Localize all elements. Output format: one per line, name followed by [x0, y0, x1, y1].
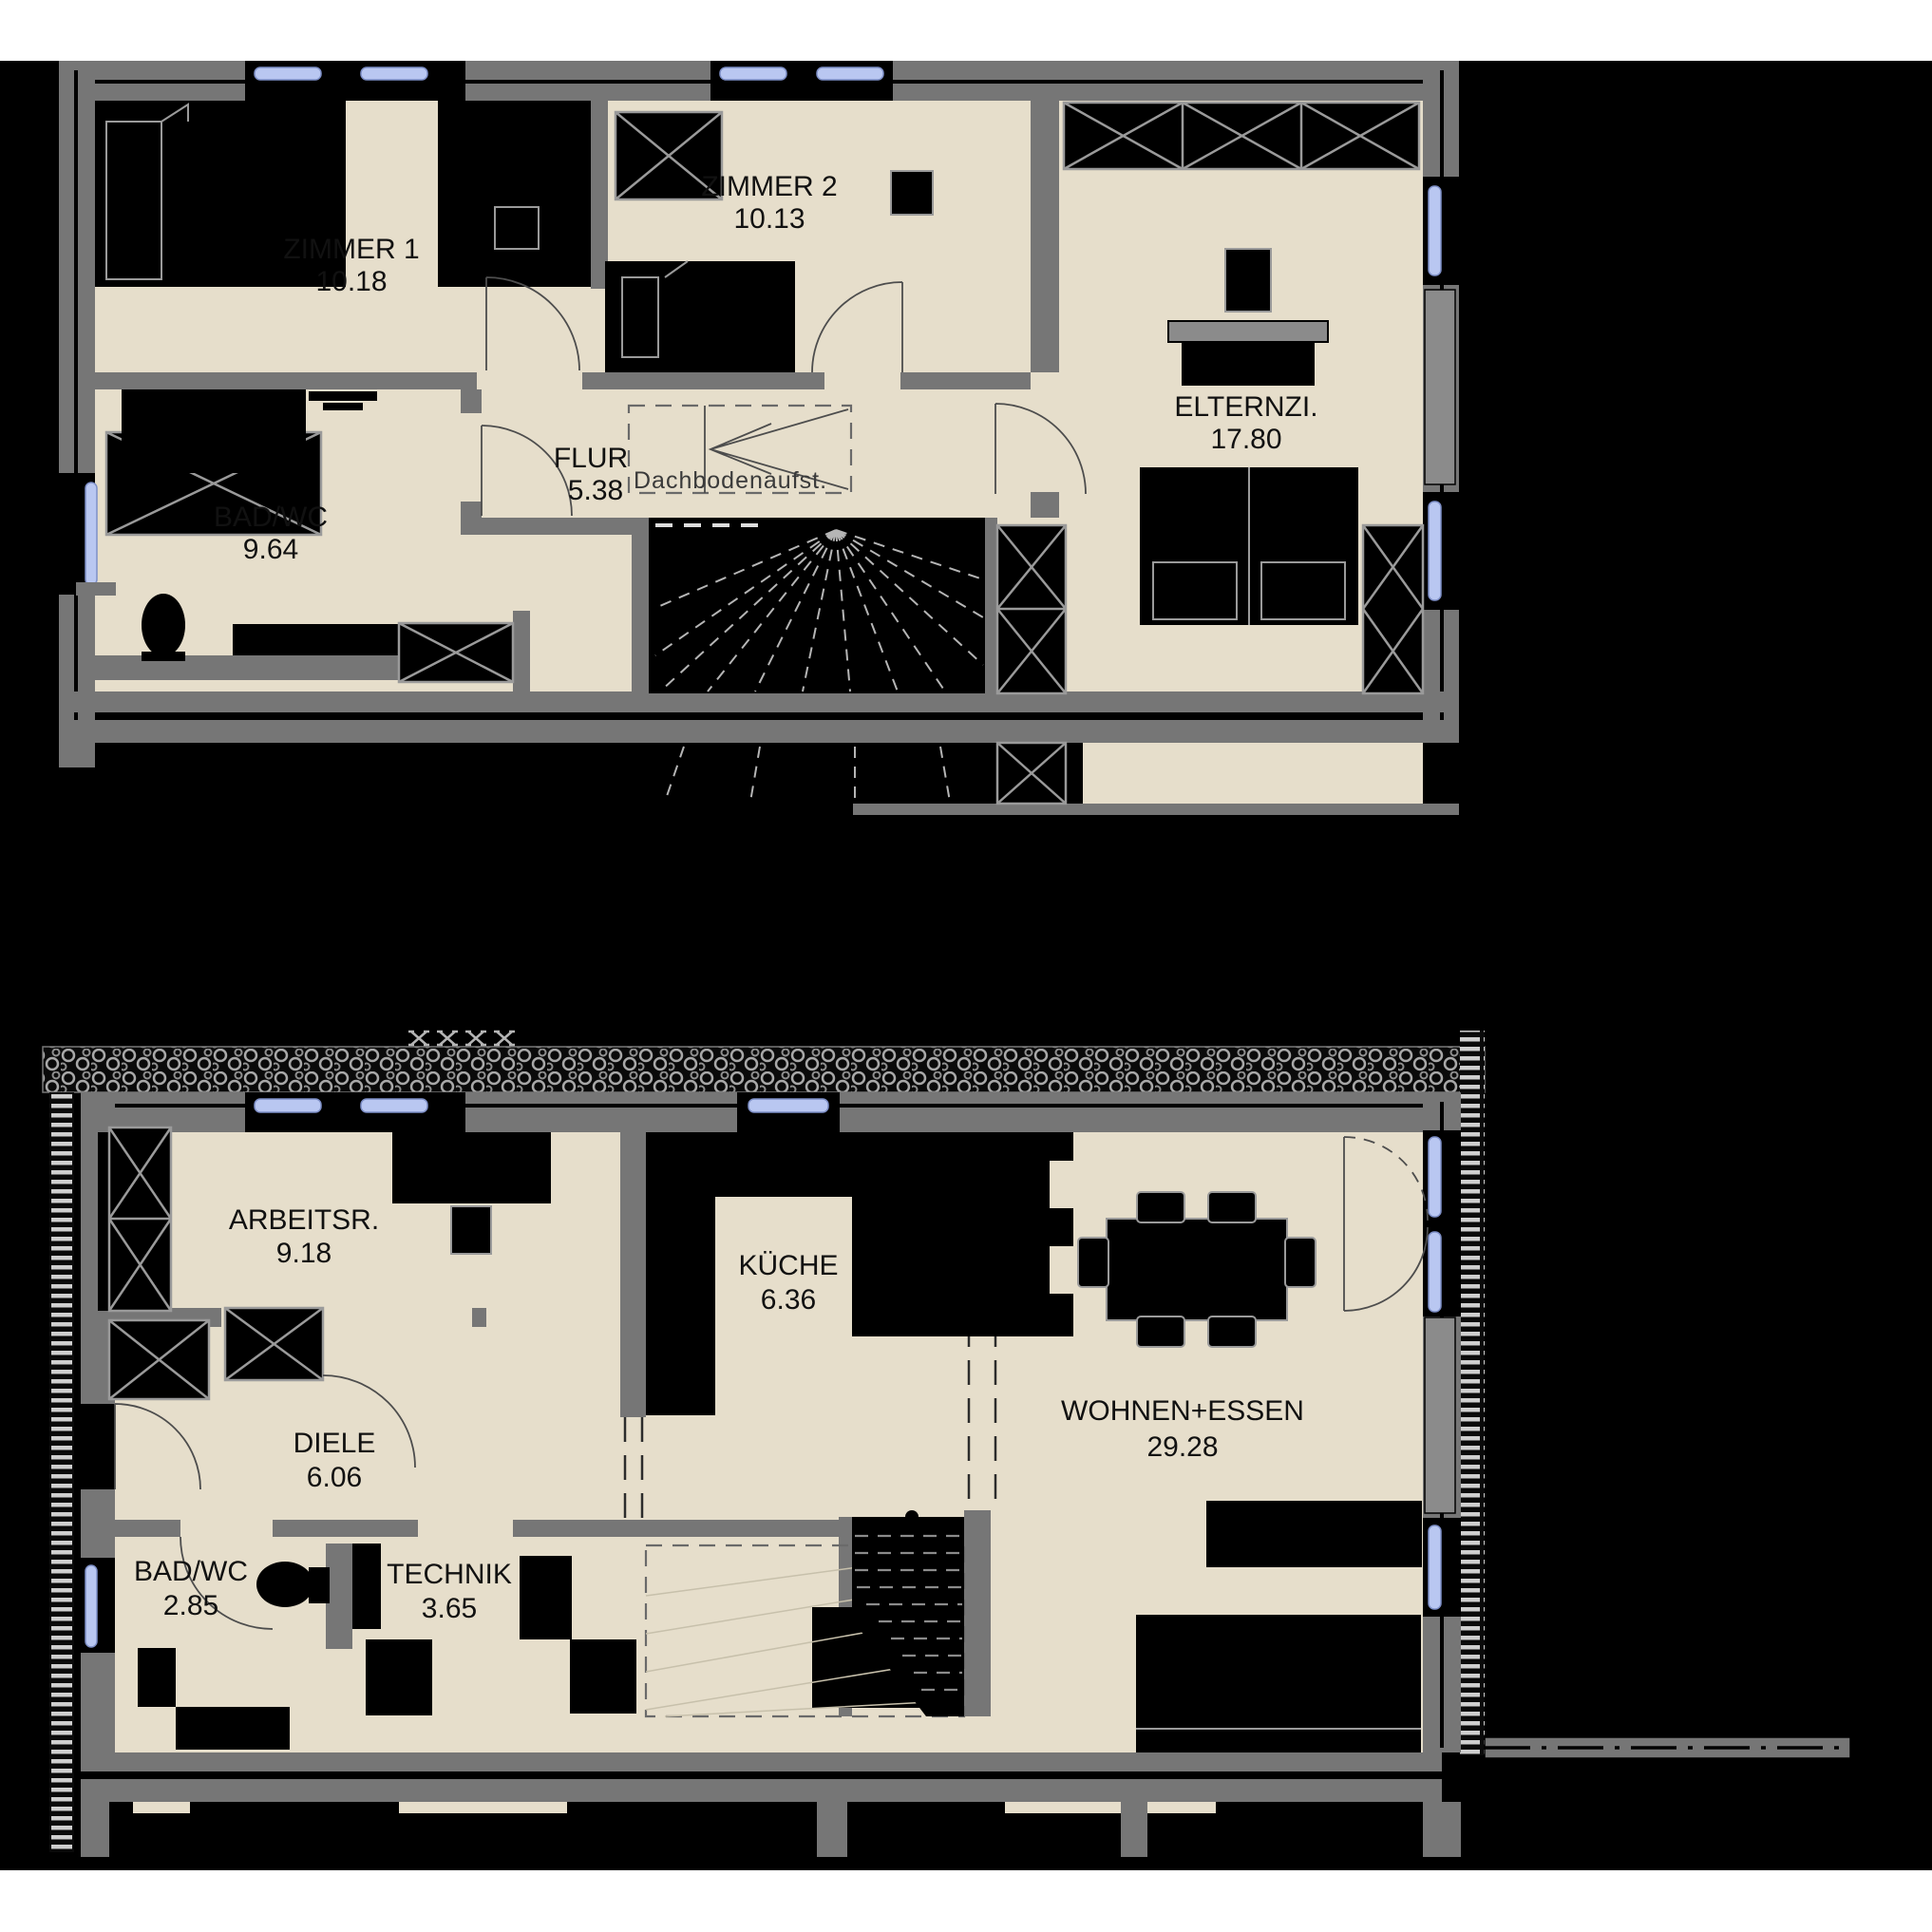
- dining-table: [1107, 1219, 1287, 1320]
- room-area: 10.13: [733, 203, 805, 235]
- closet-icon: [997, 525, 1066, 804]
- toilet-icon: [256, 1562, 313, 1607]
- pillow: [1153, 562, 1237, 619]
- washer: [352, 1544, 381, 1629]
- radiator: [309, 391, 377, 401]
- room-label: KÜCHE: [738, 1250, 838, 1281]
- room-label: TECHNIK: [387, 1559, 512, 1590]
- room-area: 10.18: [315, 266, 387, 297]
- pillow: [1261, 562, 1345, 619]
- balcony-door: [1425, 290, 1455, 484]
- window-icon: [361, 1099, 427, 1112]
- chair: [1078, 1238, 1108, 1287]
- toilet-icon: [142, 594, 185, 656]
- chest-icon: [225, 1308, 323, 1380]
- room-label: ZIMMER 1: [283, 234, 419, 265]
- lower-bottom-bands: [81, 1752, 1461, 1857]
- chair: [1208, 1192, 1256, 1222]
- room-label: FLUR: [554, 443, 628, 474]
- window-icon: [255, 67, 321, 80]
- upper-stairwell: [649, 518, 985, 804]
- window-icon: [85, 483, 97, 585]
- room-area: 5.38: [568, 475, 623, 506]
- desk-body: [1182, 342, 1315, 386]
- window-icon: [85, 1565, 97, 1647]
- terrace-door: [1425, 1317, 1455, 1513]
- property-fence: [1485, 1737, 1850, 1758]
- wardrobe-icon: [1363, 525, 1423, 693]
- gravel-strip: [43, 1047, 1485, 1092]
- window-icon: [817, 67, 883, 80]
- window-icon: [1429, 186, 1441, 275]
- room-label: DIELE: [294, 1428, 376, 1459]
- washstand: [122, 389, 306, 473]
- window-icon: [1429, 502, 1441, 600]
- chest-icon: [399, 623, 513, 682]
- wardrobe-icon: [1064, 103, 1419, 169]
- planting-marks: [408, 1032, 515, 1045]
- window-icon: [1429, 1137, 1441, 1217]
- left-terrace-hatch: [49, 1092, 74, 1852]
- wardrobe-icon: [109, 1320, 209, 1399]
- newel-post: [905, 1510, 919, 1524]
- room-area: 2.85: [163, 1590, 218, 1621]
- technik-unit: [366, 1639, 432, 1715]
- room-label: BAD/WC: [214, 502, 328, 533]
- desk-top: [1168, 321, 1328, 342]
- room-label: ZIMMER 2: [701, 171, 837, 202]
- technik-unit: [520, 1556, 572, 1639]
- room-area: 3.65: [422, 1593, 477, 1624]
- sideboard: [1206, 1501, 1422, 1567]
- room-area: 6.06: [307, 1462, 362, 1493]
- room-area: 29.28: [1146, 1431, 1218, 1463]
- nightstand: [495, 207, 539, 249]
- lower-floor-plan: ARBEITSR. 9.18 KÜCHE 6.36 WOHNEN+ESSEN 2…: [43, 1031, 1850, 1857]
- window-icon: [255, 1099, 321, 1112]
- window-icon: [748, 1099, 828, 1112]
- floor-plan-page: ZIMMER 1 10.18 ZIMMER 2 10.13 ELTERNZI. …: [0, 0, 1932, 1932]
- wardrobe-icon: [109, 1127, 171, 1311]
- room-label: WOHNEN+ESSEN: [1061, 1395, 1304, 1427]
- desk: [451, 1206, 491, 1254]
- right-terrace-hatch: [1460, 1031, 1485, 1755]
- room-area: 9.64: [243, 534, 298, 565]
- attic-annotation: Dachbodenaufst.: [634, 467, 827, 494]
- chair: [1208, 1316, 1256, 1347]
- window-icon: [720, 67, 786, 80]
- upper-floor-plan: ZIMMER 1 10.18 ZIMMER 2 10.13 ELTERNZI. …: [59, 61, 1459, 815]
- room-label: BAD/WC: [134, 1556, 248, 1587]
- room-label: ARBEITSR.: [229, 1204, 379, 1236]
- window-icon: [1429, 1525, 1441, 1609]
- room-label: ELTERNZI.: [1174, 391, 1317, 423]
- sofa: [1136, 1615, 1421, 1752]
- floor-plan-drawing: ZIMMER 1 10.18 ZIMMER 2 10.13 ELTERNZI. …: [0, 0, 1932, 1932]
- room-area: 6.36: [761, 1284, 816, 1316]
- window-icon: [361, 67, 427, 80]
- room-area: 17.80: [1210, 424, 1281, 455]
- chair: [1285, 1238, 1316, 1287]
- chair: [1137, 1316, 1184, 1347]
- technik-unit: [570, 1639, 636, 1714]
- window-icon: [1429, 1232, 1441, 1312]
- chair: [1137, 1192, 1184, 1222]
- chair: [1225, 249, 1271, 312]
- desk: [891, 171, 933, 215]
- room-area: 9.18: [276, 1238, 331, 1269]
